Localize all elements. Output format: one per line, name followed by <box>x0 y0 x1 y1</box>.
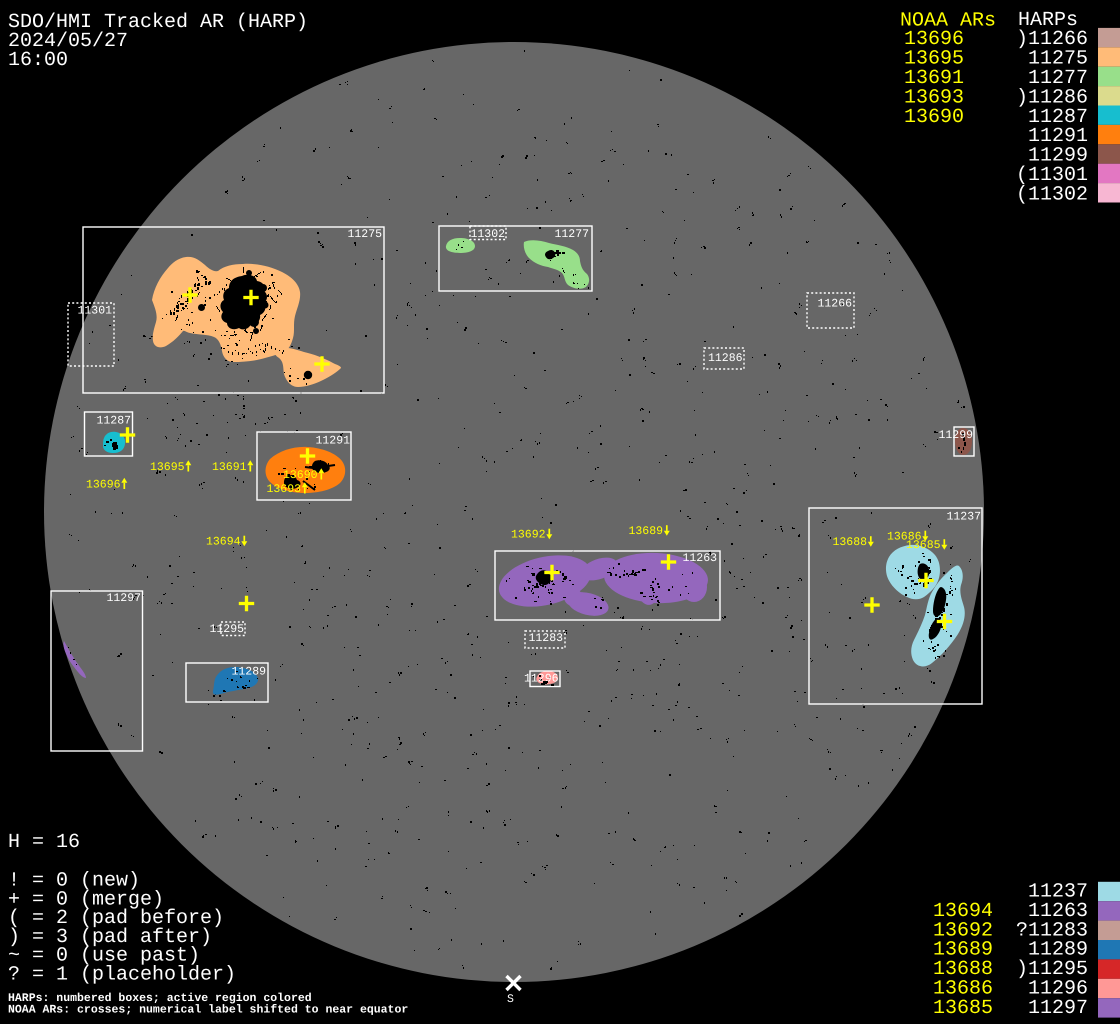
svg-text:11291: 11291 <box>315 435 350 448</box>
svg-text:11277: 11277 <box>554 228 589 241</box>
svg-text:11297: 11297 <box>1028 997 1088 1020</box>
svg-text:13690: 13690 <box>283 469 318 482</box>
svg-text:NOAA ARs: crosses; numerical l: NOAA ARs: crosses; numerical label shift… <box>8 1004 408 1017</box>
svg-text:11283: 11283 <box>528 632 563 645</box>
svg-text:13692: 13692 <box>511 529 546 542</box>
svg-text:11295: 11295 <box>209 623 244 636</box>
svg-text:11301: 11301 <box>77 305 112 318</box>
svg-text:11302: 11302 <box>470 228 505 241</box>
svg-text:11299: 11299 <box>938 429 973 442</box>
svg-text:11287: 11287 <box>96 415 131 428</box>
svg-text:13689: 13689 <box>629 525 664 538</box>
svg-text:11286: 11286 <box>708 352 743 365</box>
svg-text:11289: 11289 <box>231 666 266 679</box>
svg-text:11275: 11275 <box>347 228 382 241</box>
svg-text:13685: 13685 <box>933 997 993 1020</box>
svg-text:13693: 13693 <box>267 483 302 496</box>
svg-text:S: S <box>507 993 514 1006</box>
svg-text:13688: 13688 <box>833 536 868 549</box>
svg-text:13695: 13695 <box>150 461 185 474</box>
svg-text:13691: 13691 <box>212 461 247 474</box>
svg-text:13694: 13694 <box>206 536 241 549</box>
svg-text:13696: 13696 <box>86 479 121 492</box>
svg-text:11297: 11297 <box>106 592 141 605</box>
svg-text:11266: 11266 <box>817 298 852 311</box>
svg-text:(11302: (11302 <box>1016 183 1088 206</box>
svg-text:11263: 11263 <box>682 552 717 565</box>
svg-text:? = 1 (placeholder): ? = 1 (placeholder) <box>8 963 236 986</box>
svg-text:11237: 11237 <box>946 511 981 524</box>
svg-text:16:00: 16:00 <box>8 49 68 72</box>
svg-text:13685: 13685 <box>906 539 941 552</box>
svg-text:13690: 13690 <box>904 106 964 129</box>
svg-text:H = 16: H = 16 <box>8 831 80 854</box>
